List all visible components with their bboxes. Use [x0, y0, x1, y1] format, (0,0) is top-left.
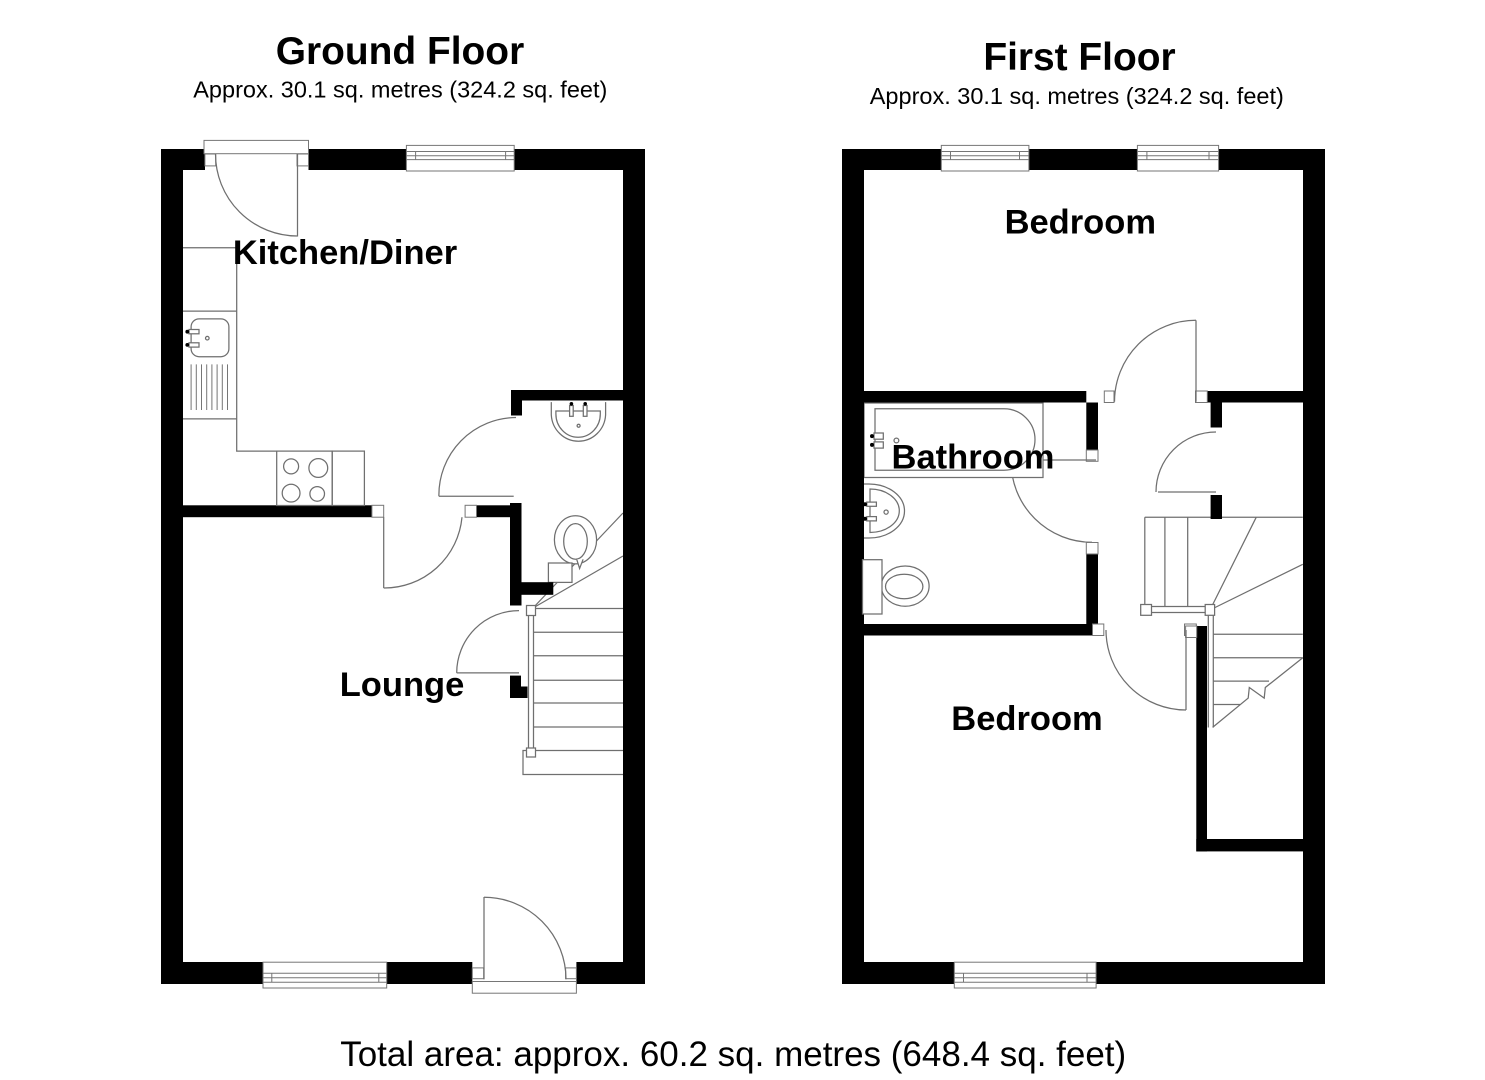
svg-text:Total area: approx. 60.2 sq. m: Total area: approx. 60.2 sq. metres (648… — [340, 1035, 1126, 1074]
svg-text:Ground Floor: Ground Floor — [276, 30, 524, 73]
svg-text:Bathroom: Bathroom — [892, 438, 1055, 476]
svg-text:Bedroom: Bedroom — [951, 700, 1102, 738]
svg-text:Bedroom: Bedroom — [1005, 204, 1156, 242]
svg-text:First Floor: First Floor — [983, 36, 1175, 79]
svg-text:Approx. 30.1 sq. metres (324.2: Approx. 30.1 sq. metres (324.2 sq. feet) — [193, 77, 607, 103]
svg-text:Lounge: Lounge — [340, 666, 465, 704]
svg-text:Kitchen/Diner: Kitchen/Diner — [233, 234, 457, 272]
svg-text:Approx. 30.1 sq. metres (324.2: Approx. 30.1 sq. metres (324.2 sq. feet) — [870, 83, 1284, 109]
